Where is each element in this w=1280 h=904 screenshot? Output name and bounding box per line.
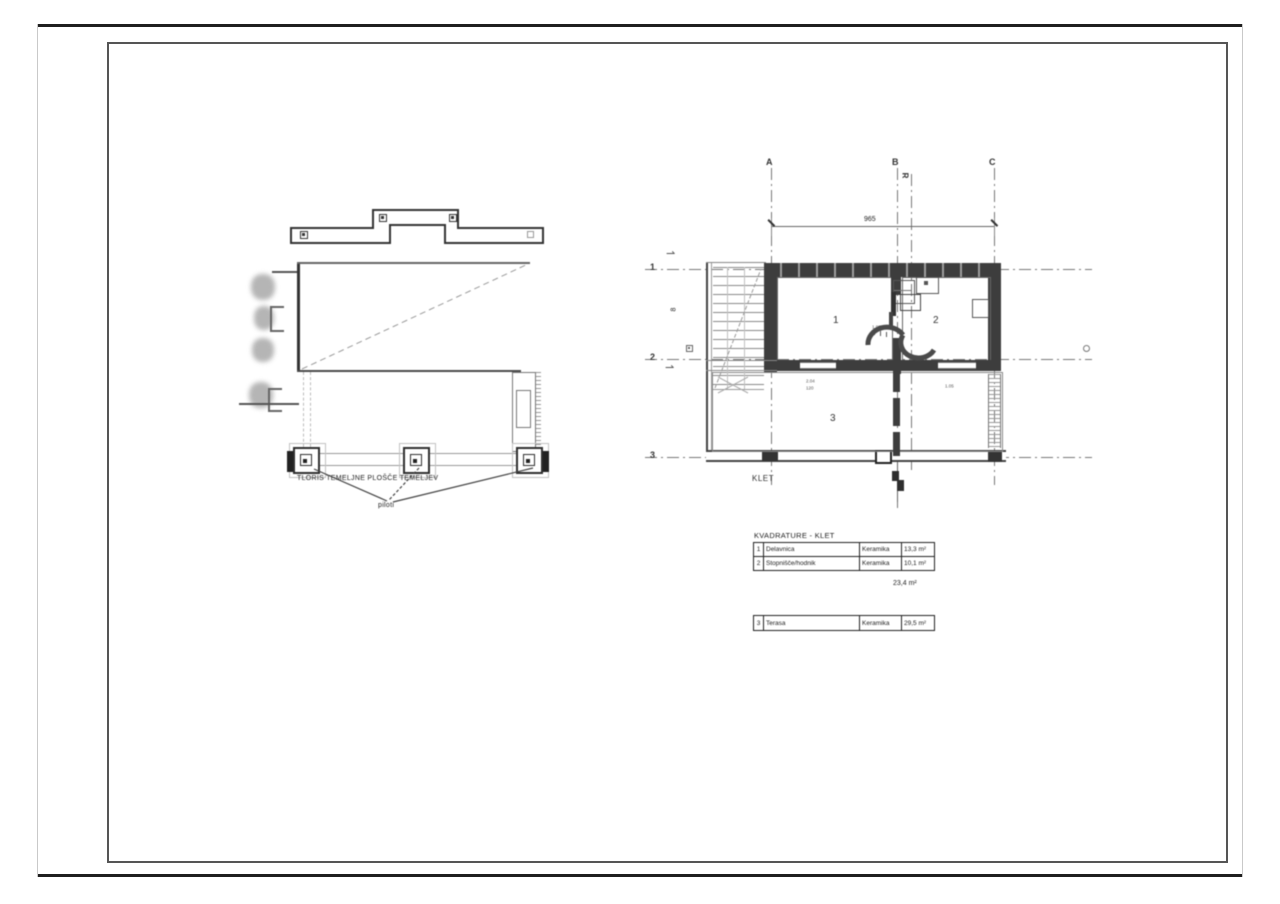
footing-pad	[516, 447, 543, 474]
slab-left-wall	[297, 262, 300, 372]
wall-A-left	[764, 263, 777, 372]
footing-tab	[543, 451, 549, 472]
room-finish: Keramika	[860, 543, 902, 556]
fixture-box	[916, 277, 939, 294]
fixture-square	[900, 294, 921, 311]
hatch-ticks	[536, 372, 541, 450]
row-number: 1	[754, 543, 764, 556]
bracket-mark	[270, 306, 284, 332]
bottom-footing-mark	[988, 452, 1002, 462]
wall-B-low-seg	[893, 374, 900, 392]
table-row: 3 Terasa Keramika 29,5 m²	[754, 616, 934, 630]
terrace-table: 3 Terasa Keramika 29,5 m²	[753, 615, 935, 631]
anchor-dot	[451, 216, 454, 219]
level-marker-icon	[686, 345, 693, 352]
grid-label-1: 1	[650, 262, 655, 272]
fixture-dot	[924, 281, 928, 285]
footing-pad	[403, 447, 430, 474]
linework-overlay	[0, 0, 1280, 904]
hidden-line	[310, 372, 312, 452]
north-arrow-icon: ⇀	[665, 363, 674, 374]
north-arrow-icon: ⇀	[666, 249, 675, 260]
room-area: 13,3 m²	[902, 543, 933, 556]
anchor-square	[379, 214, 387, 222]
room-tag-left-sub: 120	[806, 386, 814, 391]
staircase-guide-line	[744, 267, 745, 389]
grid-label-aux: R	[900, 173, 909, 179]
dimension-line	[771, 226, 995, 227]
arc-tick	[886, 332, 887, 337]
smudge-mark	[251, 274, 275, 300]
anchor-dot	[302, 233, 305, 236]
window-gap	[938, 362, 976, 369]
room-finish: Keramika	[860, 557, 902, 570]
window-hatch-column	[988, 374, 1001, 448]
footing-pad-dot	[303, 459, 307, 463]
room-1-number: 1	[833, 315, 839, 326]
anchor-square	[449, 214, 457, 222]
smudge-mark	[252, 338, 274, 362]
level-marker-dot	[688, 347, 690, 349]
foundation-window-inner	[516, 390, 531, 428]
grid-label-C: C	[989, 157, 996, 167]
row-number: 3	[754, 616, 764, 630]
staircase-guide-line	[727, 267, 728, 389]
room-area: 10,1 m²	[902, 557, 933, 570]
row-number: 2	[754, 557, 764, 570]
room-name: Terasa	[764, 616, 860, 630]
slab-divider-line	[297, 370, 521, 372]
area-table: 1 Delavnica Keramika 13,3 m² 2 Stopnišče…	[753, 542, 935, 571]
room-tag-left: 2.04	[806, 379, 815, 384]
width-dimension-text: 965	[864, 216, 876, 223]
anchor-square-light	[527, 231, 534, 238]
footing-tab	[287, 451, 293, 472]
room-tag-right: 1.05	[945, 384, 954, 389]
anchor-square	[300, 231, 308, 239]
note-line	[272, 271, 299, 273]
arc-tick	[880, 331, 881, 336]
slab-top-line	[297, 262, 530, 264]
wall-niche	[972, 299, 989, 318]
wall-B-low-seg	[893, 398, 900, 426]
grid-label-A: A	[766, 157, 773, 167]
bracket-mark	[268, 388, 282, 412]
wall-B-low-seg	[893, 432, 900, 456]
room-name: Stopnišče/hodnik	[764, 557, 860, 570]
fixture-box-line	[894, 290, 912, 291]
slab-diagonal-dashed	[302, 264, 528, 369]
area-table-title: KVADRATURE - KLET	[754, 531, 835, 540]
staircase-bottom-line	[713, 389, 764, 390]
room-2-number: 2	[933, 315, 939, 326]
grid-label-2: 2	[650, 352, 655, 362]
note-line	[239, 403, 299, 405]
table-row: 1 Delavnica Keramika 13,3 m²	[754, 543, 934, 556]
axis-end-marker-icon	[1083, 345, 1090, 352]
area-table-total: 23,4 m²	[893, 580, 917, 587]
outer-wall-top-thin	[706, 262, 766, 263]
foundation-profile-outline	[291, 210, 543, 243]
height-dimension-text: 8	[670, 308, 677, 312]
room-name: Delavnica	[764, 543, 860, 556]
outer-wall-top	[764, 263, 1001, 277]
foundation-leader-label: piloti	[378, 502, 394, 509]
hidden-line	[303, 372, 305, 452]
grid-label-3: 3	[650, 450, 655, 460]
footing-pad-dot	[413, 459, 417, 463]
drawing-sheet: TLORIS TEMELJNE PLOŠČE TEMELJEV piloti A…	[0, 0, 1280, 904]
anchor-dot	[381, 216, 384, 219]
footing-pad-dot	[526, 459, 530, 463]
table-row: 2 Stopnišče/hodnik Keramika 10,1 m²	[754, 556, 934, 570]
bottom-footing-box	[875, 450, 892, 464]
room-tag-stair: 1.03	[872, 325, 881, 330]
foundation-caption: TLORIS TEMELJNE PLOŠČE TEMELJEV	[297, 475, 438, 482]
arc-tick	[874, 330, 875, 335]
room-3-number: 3	[830, 413, 836, 424]
fixture-bar	[889, 312, 893, 329]
footing-pad	[293, 447, 320, 474]
plan-title: KLET	[752, 474, 774, 483]
grid-label-B: B	[892, 157, 899, 167]
staircase-treads	[713, 267, 764, 389]
bottom-footing-mark	[762, 452, 778, 461]
section-flag-icon	[897, 480, 904, 491]
room-finish: Keramika	[860, 616, 902, 630]
window-gap	[800, 362, 836, 369]
sheet-content: TLORIS TEMELJNE PLOŠČE TEMELJEV piloti A…	[0, 0, 1280, 904]
room-area: 29,5 m²	[902, 616, 933, 630]
